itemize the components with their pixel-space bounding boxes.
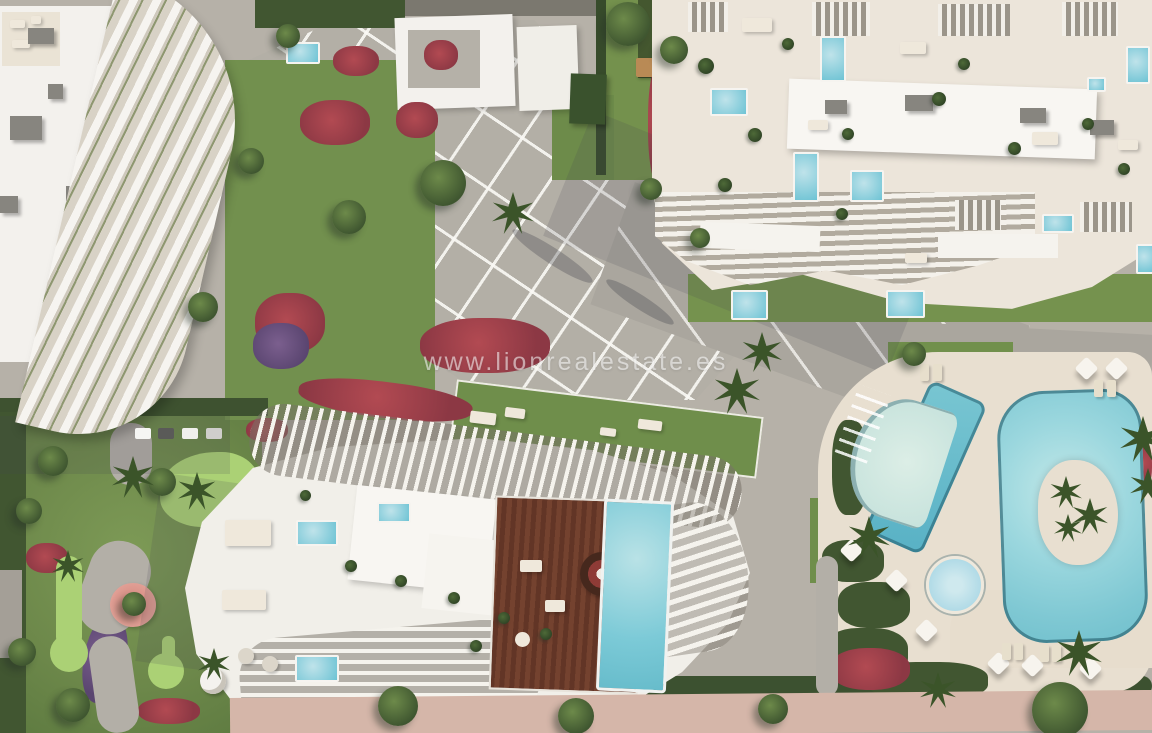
kids-pool: [926, 556, 984, 614]
round-seat-1: [238, 648, 254, 664]
slab-vent-3: [825, 100, 847, 114]
rooftop-dining-set: [742, 18, 772, 32]
slab-vent-1: [905, 95, 933, 111]
penthouse-pool-3: [377, 502, 411, 523]
pool-lounger-8: [1107, 380, 1116, 397]
garden-pool-1: [731, 290, 768, 320]
planter-row-3: [448, 592, 460, 604]
roof-planter-4: [842, 128, 854, 140]
flowerbed-red-4: [333, 46, 379, 76]
tree-garden-3: [148, 468, 176, 496]
tree-mid-1: [238, 148, 264, 174]
tree-top-1: [606, 2, 650, 46]
plunge-pool-2: [710, 88, 748, 116]
roof-planter-8: [836, 208, 848, 220]
pool-island: [1038, 460, 1118, 565]
tree-plaza-1: [420, 160, 466, 206]
tree-plaza-2: [332, 200, 366, 234]
terrace-chair: [31, 16, 41, 24]
tree-garden-4: [56, 688, 90, 722]
pool-lounger-7: [1094, 380, 1103, 397]
rooftop-sofa-1: [900, 42, 926, 54]
tree-promenade-1: [378, 686, 418, 726]
pool-lounger-4: [1052, 645, 1061, 662]
parked-car-1: [135, 428, 151, 439]
right-building-slab-3: [938, 234, 1058, 258]
planter-row-2: [395, 575, 407, 587]
pergola-slats-6: [688, 2, 728, 32]
pool-lounger-2: [1014, 643, 1023, 660]
tree-promenade-3: [758, 694, 788, 724]
right-building-slab-2: [700, 222, 821, 252]
roof-planter-1: [698, 58, 714, 74]
tree-road-1: [640, 178, 662, 200]
roof-planter-9: [1082, 118, 1094, 130]
plunge-pool-3: [793, 152, 819, 202]
deck-lounger-2: [545, 600, 565, 612]
pool-lounger-1: [1002, 643, 1011, 660]
pink-promenade: [230, 690, 1152, 733]
penthouse-pool-2: [295, 655, 339, 682]
planter-row-6: [300, 490, 311, 501]
tree-top-2: [660, 36, 688, 64]
roof-planter-10: [718, 178, 732, 192]
tree-road-2: [690, 228, 710, 248]
roof-planter-7: [1118, 163, 1130, 175]
aerial-render: www.lionrealestate.es: [0, 0, 1152, 733]
terrace-sofa: [10, 20, 25, 28]
pool-side-path: [816, 556, 838, 696]
tree-plaza-3: [188, 292, 218, 322]
rooftop-lounge-2: [1118, 140, 1138, 150]
roof-vent-4: [10, 116, 42, 140]
tree-promenade-2: [558, 698, 594, 733]
flowerbed-red-garden-2: [138, 698, 200, 724]
roof-vent-2: [48, 84, 63, 99]
roof-planter-5: [932, 92, 946, 106]
deck-lounger-1: [520, 560, 542, 572]
top-mid-flowers: [396, 102, 438, 138]
pool-lounger-3: [1040, 645, 1049, 662]
pergola-slats-1: [812, 2, 870, 36]
parked-car-4: [206, 428, 222, 439]
flowerbed-red-1: [300, 100, 370, 145]
tree-garden-1: [38, 446, 68, 476]
rooftop-jacuzzi: [1042, 214, 1074, 233]
penthouse-dining: [222, 590, 266, 610]
pergola-slats-4: [955, 200, 1001, 230]
penthouse-pool-1: [296, 520, 338, 546]
roof-planter-2: [748, 128, 762, 142]
round-seat-2: [262, 656, 278, 672]
tree-garden-5: [8, 638, 36, 666]
penthouse-loungers: [225, 520, 271, 546]
pool-flowers-red: [830, 648, 910, 690]
planter-row-7: [470, 640, 482, 652]
parked-car-3: [182, 428, 198, 439]
tree-top-3: [276, 24, 300, 48]
plunge-pool-4: [850, 170, 884, 202]
garden-pool-3: [1136, 244, 1152, 274]
green-pergola-shed: [569, 73, 607, 124]
watermark: www.lionrealestate.es: [0, 348, 1152, 377]
putting-green-circle: [50, 634, 88, 672]
pergola-slats-2: [938, 4, 1010, 36]
tree-planter-center: [122, 592, 146, 616]
infinity-pool: [596, 499, 674, 694]
plunge-pool-5: [1126, 46, 1150, 84]
planter-row-4: [498, 612, 510, 624]
garden-pool-2: [886, 290, 925, 318]
tree-garden-2: [16, 498, 42, 524]
roof-planter-11: [958, 58, 970, 70]
roof-planter-3: [782, 38, 794, 50]
roof-vent-5: [0, 196, 18, 213]
planter-row-5: [540, 628, 552, 640]
pergola-slats-3: [1062, 2, 1118, 36]
deck-pouf: [515, 632, 530, 647]
garden-lounge: [905, 253, 927, 263]
spiral-stair: [200, 668, 226, 694]
plunge-pool-6: [1087, 77, 1106, 92]
planter-row-1: [345, 560, 357, 572]
parked-car-2: [158, 428, 174, 439]
tree-promenade-4: [1032, 682, 1088, 733]
hedge-top-left: [255, 0, 405, 28]
roof-vent-1: [28, 28, 54, 44]
courtyard-flowers: [424, 40, 458, 70]
pergola-slats-5: [1080, 202, 1132, 232]
rooftop-lounge-1: [808, 120, 828, 130]
rooftop-sofa-2: [1032, 132, 1058, 145]
right-building-roof-slab: [787, 79, 1097, 160]
slab-vent-2: [1020, 108, 1046, 123]
plunge-pool-1: [820, 36, 846, 82]
roof-planter-6: [1008, 142, 1021, 155]
